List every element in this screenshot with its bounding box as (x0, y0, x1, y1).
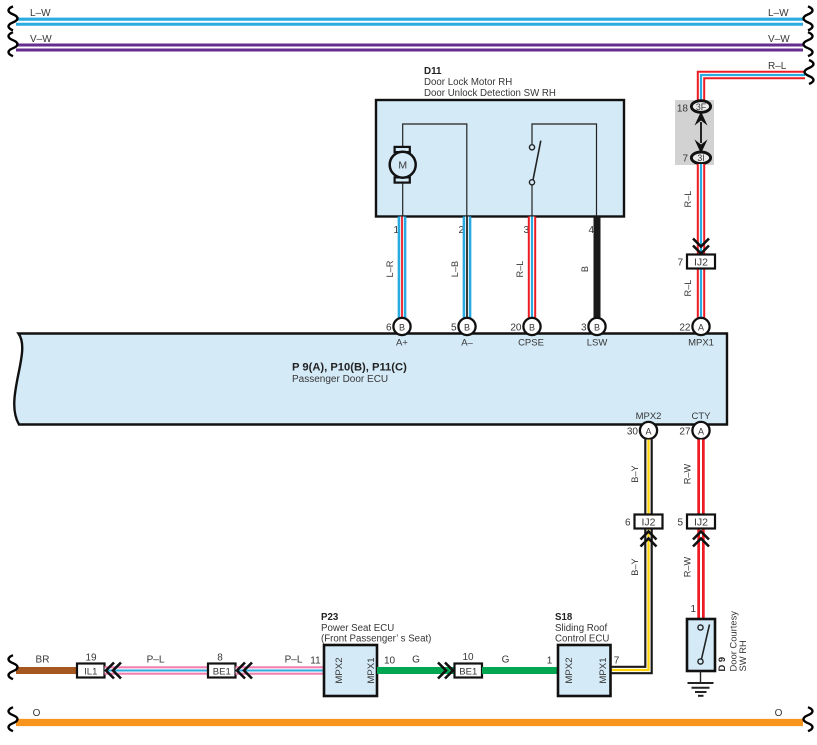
svg-text:R–L: R–L (768, 61, 787, 72)
svg-text:B–Y: B–Y (630, 558, 640, 575)
svg-text:L–B: L–B (450, 261, 460, 277)
svg-text:L–W: L–W (30, 8, 51, 19)
svg-text:B: B (594, 323, 600, 333)
svg-text:18: 18 (677, 104, 689, 115)
svg-text:CTY: CTY (692, 411, 712, 422)
svg-text:R–L: R–L (683, 280, 693, 297)
svg-text:P 9(A), P10(B), P11(C): P 9(A), P10(B), P11(C) (292, 362, 407, 374)
svg-text:MPX1: MPX1 (598, 657, 609, 683)
svg-text:(Front Passenger’ s Seat): (Front Passenger’ s Seat) (321, 634, 431, 645)
svg-text:V–W: V–W (768, 34, 790, 45)
svg-text:Sliding Roof: Sliding Roof (555, 623, 608, 634)
svg-text:MPX1: MPX1 (366, 657, 377, 683)
svg-text:A: A (698, 427, 704, 437)
svg-text:B: B (464, 323, 470, 333)
svg-text:O: O (33, 708, 41, 719)
svg-text:MPX2: MPX2 (564, 657, 575, 683)
svg-text:Door Lock Motor RH: Door Lock Motor RH (424, 77, 512, 88)
svg-text:6: 6 (625, 518, 631, 529)
svg-text:P23: P23 (321, 612, 339, 623)
svg-text:BE1: BE1 (459, 667, 477, 678)
svg-text:7: 7 (677, 258, 683, 269)
svg-text:IL1: IL1 (84, 667, 97, 678)
svg-text:R–L: R–L (683, 191, 693, 208)
svg-text:27: 27 (679, 427, 691, 438)
svg-text:M: M (398, 160, 407, 172)
svg-text:IJ2: IJ2 (694, 517, 708, 529)
svg-text:G: G (502, 655, 510, 666)
svg-text:10: 10 (462, 652, 474, 663)
svg-text:IJ2: IJ2 (694, 257, 708, 269)
svg-text:D11: D11 (424, 66, 442, 77)
svg-text:B: B (580, 266, 590, 272)
svg-text:5: 5 (451, 323, 457, 334)
svg-text:30: 30 (627, 427, 639, 438)
svg-text:7: 7 (682, 154, 688, 165)
svg-text:1: 1 (690, 604, 696, 615)
svg-text:SW RH: SW RH (737, 640, 748, 671)
svg-text:S18: S18 (555, 612, 573, 623)
svg-text:MPX1: MPX1 (688, 338, 714, 349)
svg-text:A+: A+ (396, 338, 408, 349)
svg-text:BR: BR (36, 655, 50, 666)
svg-text:D 9: D 9 (716, 657, 727, 672)
svg-text:Passenger Door ECU: Passenger Door ECU (292, 374, 388, 385)
svg-text:1: 1 (547, 656, 553, 667)
svg-text:R–W: R–W (683, 556, 693, 577)
svg-text:O: O (775, 708, 783, 719)
svg-text:LSW: LSW (587, 338, 608, 349)
svg-text:Control ECU: Control ECU (555, 634, 609, 645)
svg-text:7: 7 (614, 656, 620, 667)
svg-text:A: A (698, 323, 704, 333)
svg-text:L–R: L–R (385, 260, 395, 277)
svg-text:P–L: P–L (285, 655, 303, 666)
svg-text:V–W: V–W (30, 34, 52, 45)
svg-text:MPX2: MPX2 (334, 657, 345, 683)
svg-text:MPX2: MPX2 (636, 411, 662, 422)
svg-text:19: 19 (85, 653, 97, 664)
svg-text:L–W: L–W (768, 8, 789, 19)
svg-text:B–Y: B–Y (630, 465, 640, 482)
svg-text:R–L: R–L (515, 261, 525, 278)
svg-text:R–W: R–W (683, 463, 693, 484)
svg-text:5: 5 (677, 518, 683, 529)
svg-text:Door Unlock Detection SW RH: Door Unlock Detection SW RH (424, 88, 556, 99)
svg-text:20: 20 (510, 323, 522, 334)
svg-text:B: B (529, 323, 535, 333)
svg-text:IJ2: IJ2 (641, 517, 655, 529)
svg-text:G: G (412, 655, 420, 666)
svg-text:6: 6 (386, 323, 392, 334)
svg-text:3: 3 (581, 323, 587, 334)
svg-text:Power Seat ECU: Power Seat ECU (321, 623, 394, 634)
svg-text:P–L: P–L (147, 655, 165, 666)
svg-text:3F: 3F (696, 102, 707, 112)
svg-text:22: 22 (679, 323, 691, 334)
svg-text:A–: A– (461, 338, 473, 349)
svg-text:A: A (645, 427, 651, 437)
svg-text:11: 11 (310, 656, 321, 667)
svg-text:10: 10 (384, 656, 396, 667)
svg-text:B: B (399, 323, 405, 333)
svg-text:CPSE: CPSE (518, 338, 544, 349)
svg-text:3I: 3I (697, 153, 704, 163)
svg-text:BE1: BE1 (213, 667, 231, 678)
svg-text:8: 8 (217, 653, 223, 664)
